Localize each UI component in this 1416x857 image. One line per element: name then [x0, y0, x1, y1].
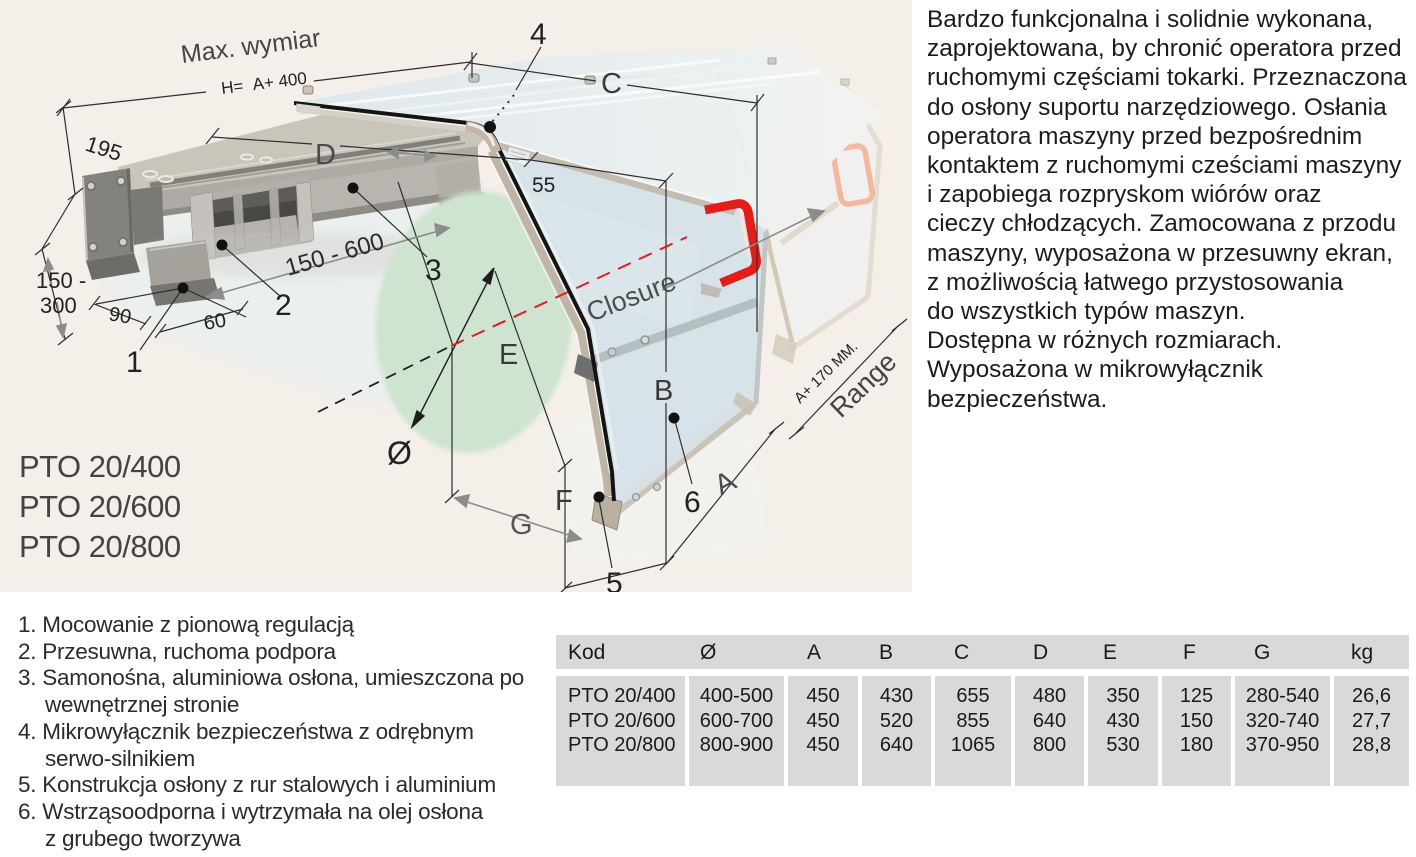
svg-text:G: G: [510, 509, 533, 541]
svg-text:150 -: 150 -: [36, 268, 86, 293]
svg-text:Ø: Ø: [387, 435, 412, 471]
svg-text:1: 1: [126, 346, 143, 379]
svg-text:4: 4: [530, 18, 547, 51]
svg-text:B: B: [654, 375, 673, 407]
svg-text:C: C: [601, 68, 622, 100]
svg-text:D: D: [315, 139, 336, 171]
svg-text:60: 60: [202, 309, 228, 335]
svg-text:5: 5: [606, 567, 623, 592]
svg-text:F: F: [555, 485, 573, 517]
svg-text:2: 2: [275, 289, 292, 322]
svg-text:55: 55: [532, 174, 555, 197]
svg-text:300: 300: [40, 293, 77, 318]
svg-text:6: 6: [684, 486, 701, 519]
svg-text:E: E: [499, 339, 518, 371]
svg-text:90: 90: [107, 303, 133, 329]
svg-text:3: 3: [425, 254, 442, 287]
